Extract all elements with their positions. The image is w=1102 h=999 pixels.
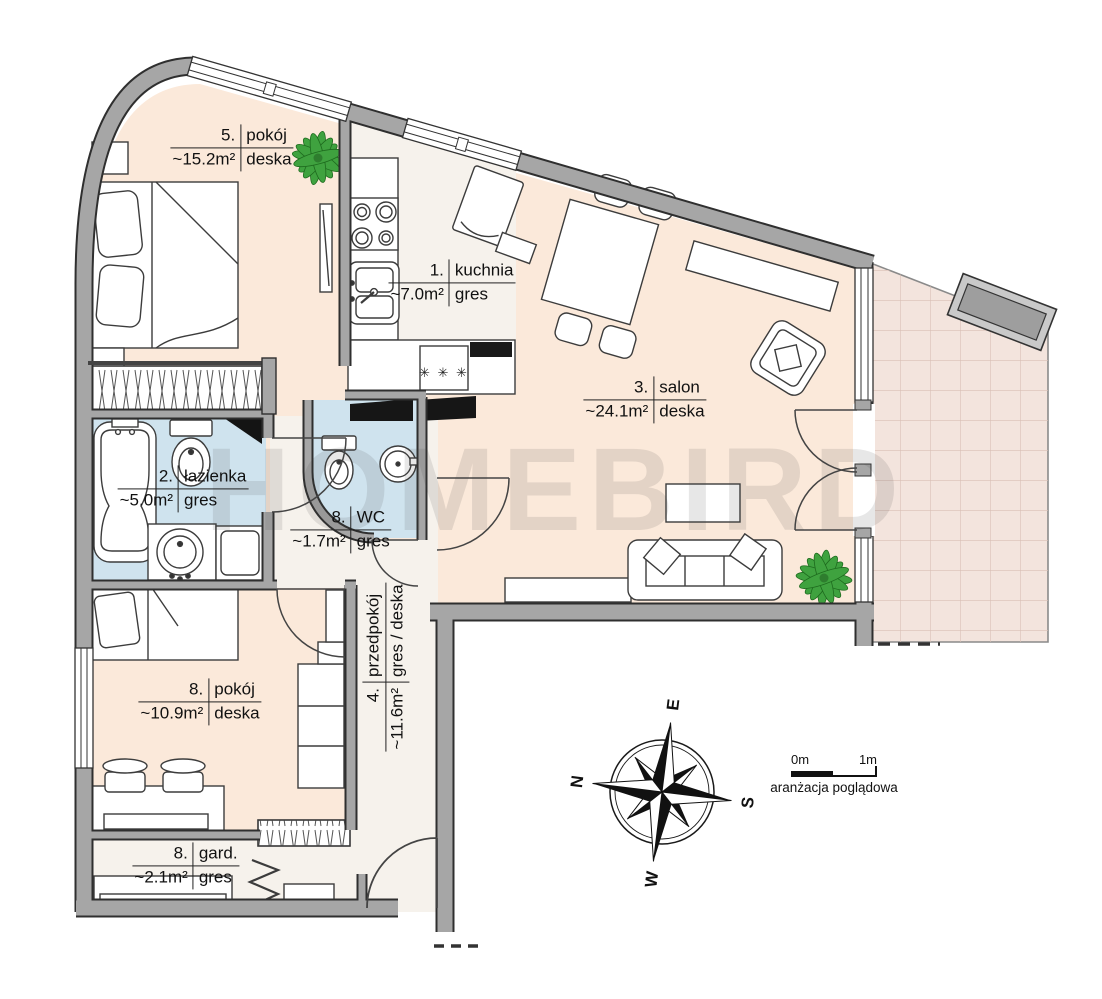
room-number: 1.	[389, 259, 450, 283]
room-floor: deska	[209, 703, 261, 726]
room-area: ~10.9m²	[138, 703, 209, 726]
compass-east-label: E	[663, 698, 683, 712]
room-area: ~11.6m²	[387, 682, 410, 752]
scale-bar-graphic	[791, 768, 877, 777]
scale-end-label: 1m	[859, 752, 877, 767]
room-floor: gres	[450, 284, 516, 307]
room-number: 3.	[583, 376, 654, 400]
compass-west-label: W	[641, 869, 662, 888]
closet-gard	[258, 820, 350, 846]
room-name: łazienka	[179, 465, 248, 489]
scale-caption: aranżacja poglądowa	[770, 780, 898, 795]
closet-room5	[92, 366, 262, 410]
room-area: ~24.1m²	[583, 401, 654, 424]
compass-rose: N E S W	[556, 687, 769, 899]
room-label-wc: 8. WC ~1.7m² gres	[290, 506, 391, 553]
room-name: przedpokój	[362, 582, 386, 682]
desk-chair-2	[161, 759, 205, 792]
room-area: ~2.1m²	[132, 867, 193, 890]
room-floor: gres	[194, 867, 240, 890]
room-label-salon: 3. salon ~24.1m² deska	[583, 376, 706, 423]
floor-plan: HOMEBIRD N E S W ✳ ✳ ✳ 5. pokój ~15.2m² …	[0, 0, 1102, 999]
room-label-pokoj5: 5. pokój ~15.2m² deska	[170, 124, 293, 171]
tv-stand	[505, 578, 631, 602]
single-bed	[90, 585, 238, 660]
room-floor: deska	[654, 401, 706, 424]
scale-bar: 0m 1m aranżacja poglądowa	[770, 752, 898, 795]
room-label-lazienka: 2. łazienka ~5.0m² gres	[118, 465, 249, 512]
scale-start-label: 0m	[791, 752, 809, 767]
room-label-gard: 8. gard. ~2.1m² gres	[132, 842, 239, 889]
room-floor: deska	[241, 149, 293, 172]
compass-south-label: S	[738, 796, 758, 810]
room-area: ~7.0m²	[389, 284, 450, 307]
room-number: 8.	[290, 506, 351, 530]
wall-block	[262, 358, 276, 414]
scale-bar-solid	[791, 771, 833, 777]
room-floor: gres / deska	[387, 582, 410, 682]
room-area: ~1.7m²	[290, 531, 351, 554]
room-floor: gres	[179, 490, 248, 513]
room-label-przedpokoj: 4. przedpokój ~11.6m² gres / deska	[362, 582, 409, 751]
window-salon-terrace-1	[855, 268, 873, 402]
window-left	[75, 648, 93, 768]
room-area: ~15.2m²	[170, 149, 241, 172]
room-number: 4.	[362, 682, 386, 752]
room-name: salon	[654, 376, 706, 400]
room-number: 8.	[138, 678, 209, 702]
room-floor: gres	[352, 531, 392, 554]
desk-chair-1	[103, 759, 147, 792]
freezer-symbol: ✳ ✳ ✳	[419, 365, 469, 380]
room-name: pokój	[241, 124, 293, 148]
room-number: 2.	[118, 465, 179, 489]
tv	[320, 204, 332, 292]
room-name: gard.	[194, 842, 240, 866]
room-number: 8.	[132, 842, 193, 866]
compass-north-label: N	[567, 774, 587, 789]
double-bed	[90, 182, 238, 348]
scale-bar-line	[833, 766, 877, 777]
room-name: kuchnia	[450, 259, 516, 283]
room-label-pokoj8: 8. pokój ~10.9m² deska	[138, 678, 261, 725]
compass-long-points	[584, 714, 740, 870]
stove	[348, 198, 398, 250]
room-area: ~5.0m²	[118, 490, 179, 513]
room-label-kuchnia: 1. kuchnia ~7.0m² gres	[389, 259, 516, 306]
room-name: WC	[352, 506, 392, 530]
desk	[88, 786, 224, 832]
room-number: 5.	[170, 124, 241, 148]
room-name: pokój	[209, 678, 261, 702]
